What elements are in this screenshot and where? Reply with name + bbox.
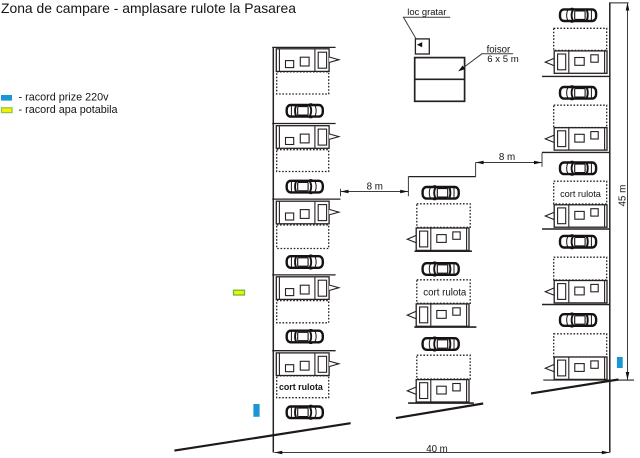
svg-text:8 m: 8 m: [499, 152, 515, 163]
svg-text:cort rulota: cort rulota: [279, 382, 323, 392]
svg-text:40 m: 40 m: [426, 444, 448, 455]
svg-text:45 m: 45 m: [618, 185, 629, 207]
svg-text:cort rulota: cort rulota: [423, 287, 467, 298]
svg-text:6 x 5 m: 6 x 5 m: [487, 54, 518, 65]
svg-text:- racord apa potabila: - racord apa potabila: [19, 104, 118, 116]
svg-text:cort rulota: cort rulota: [560, 189, 602, 199]
svg-text:Zona de campare - amplasare ru: Zona de campare - amplasare rulote la Pa…: [1, 0, 296, 16]
svg-text:8 m: 8 m: [367, 181, 383, 192]
svg-text:- racord prize 220v: - racord prize 220v: [19, 91, 110, 103]
svg-text:loc gratar: loc gratar: [407, 6, 446, 17]
